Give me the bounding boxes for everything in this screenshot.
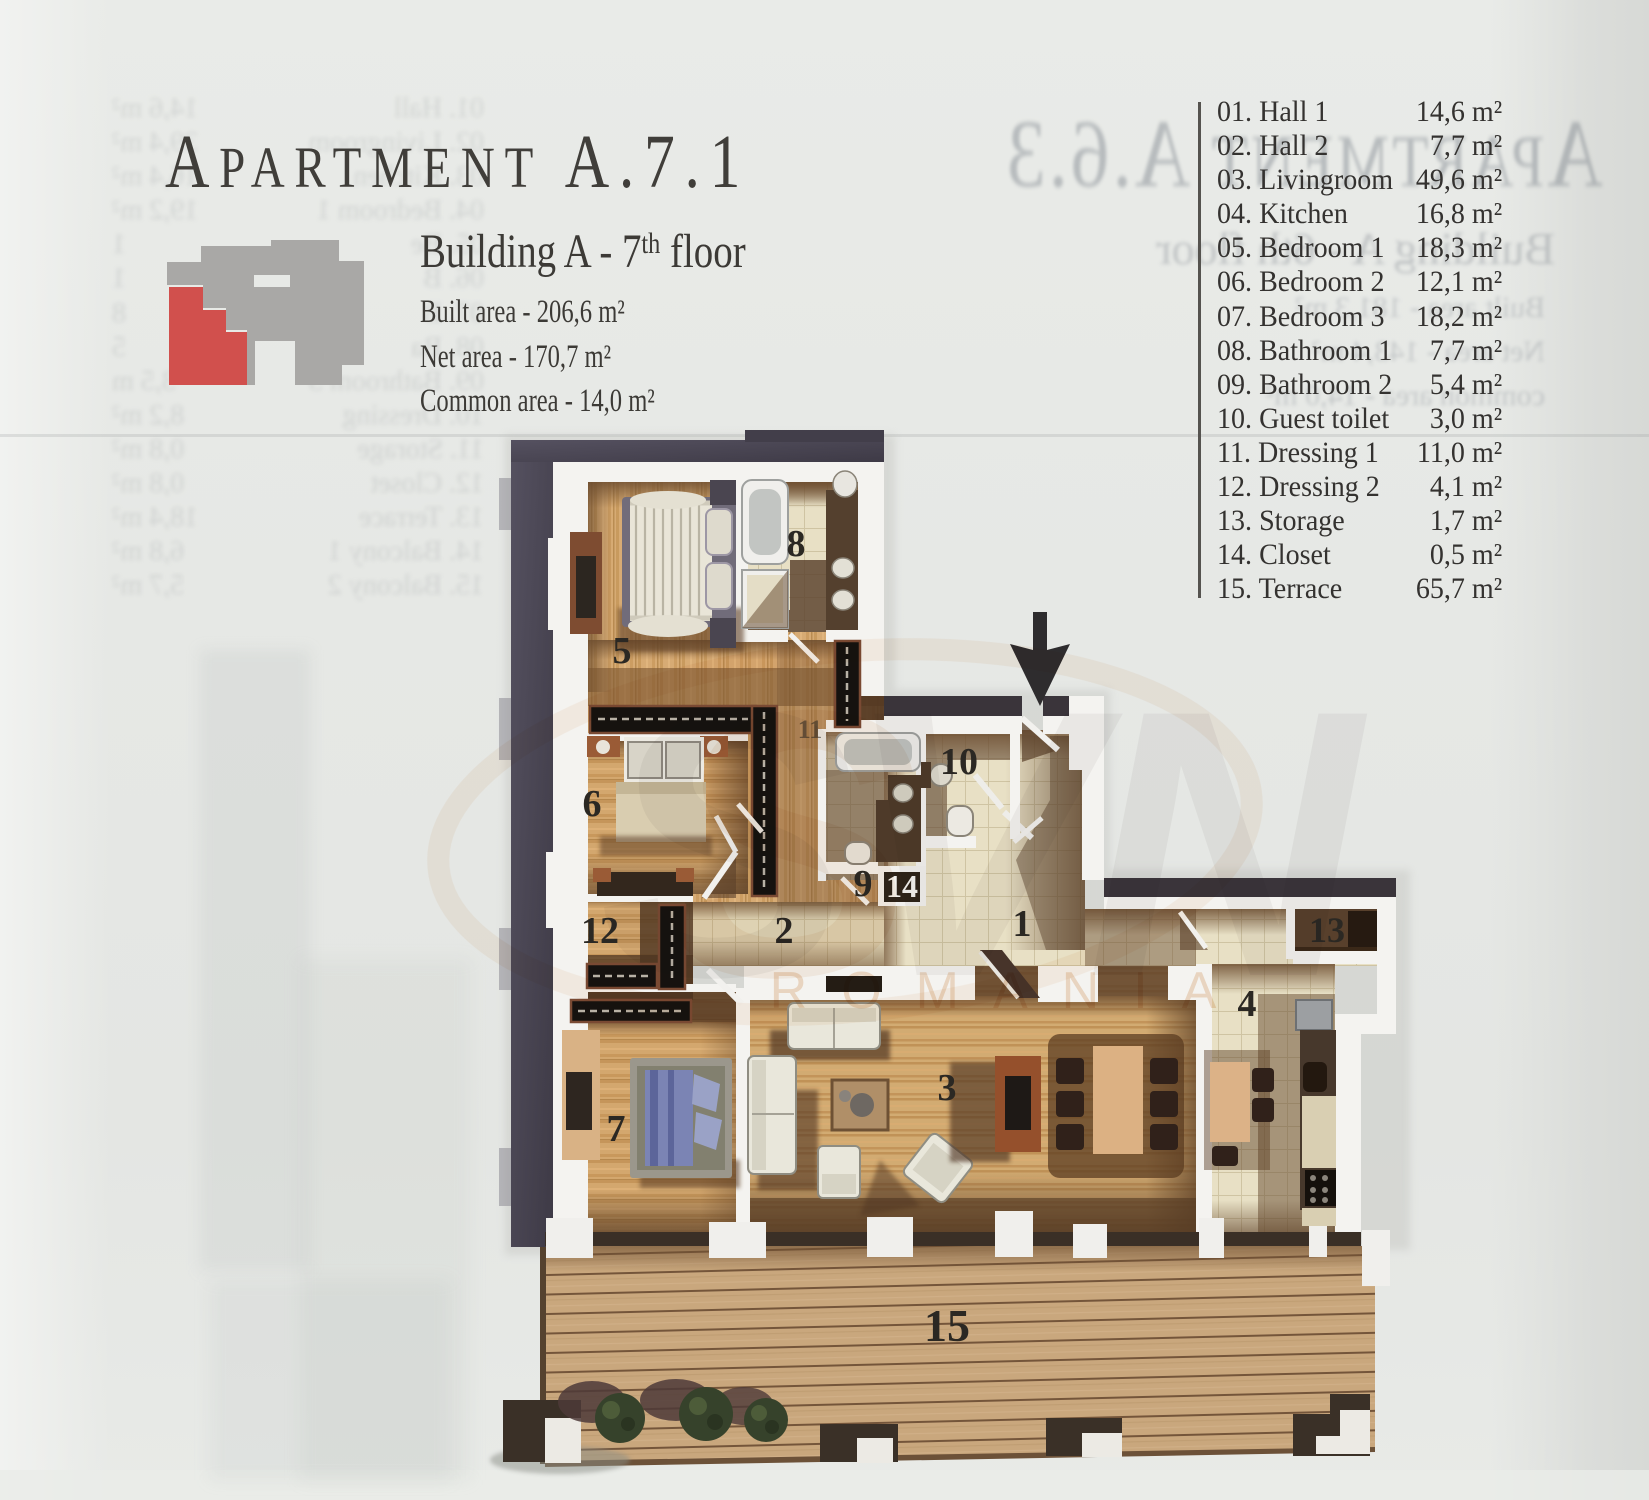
svg-text:15: 15	[924, 1300, 970, 1351]
svg-text:3: 3	[938, 1067, 957, 1109]
svg-text:ROMANIA: ROMANIA	[770, 962, 1251, 1020]
svg-text:7: 7	[607, 1108, 626, 1150]
svg-text:8: 8	[787, 523, 806, 565]
